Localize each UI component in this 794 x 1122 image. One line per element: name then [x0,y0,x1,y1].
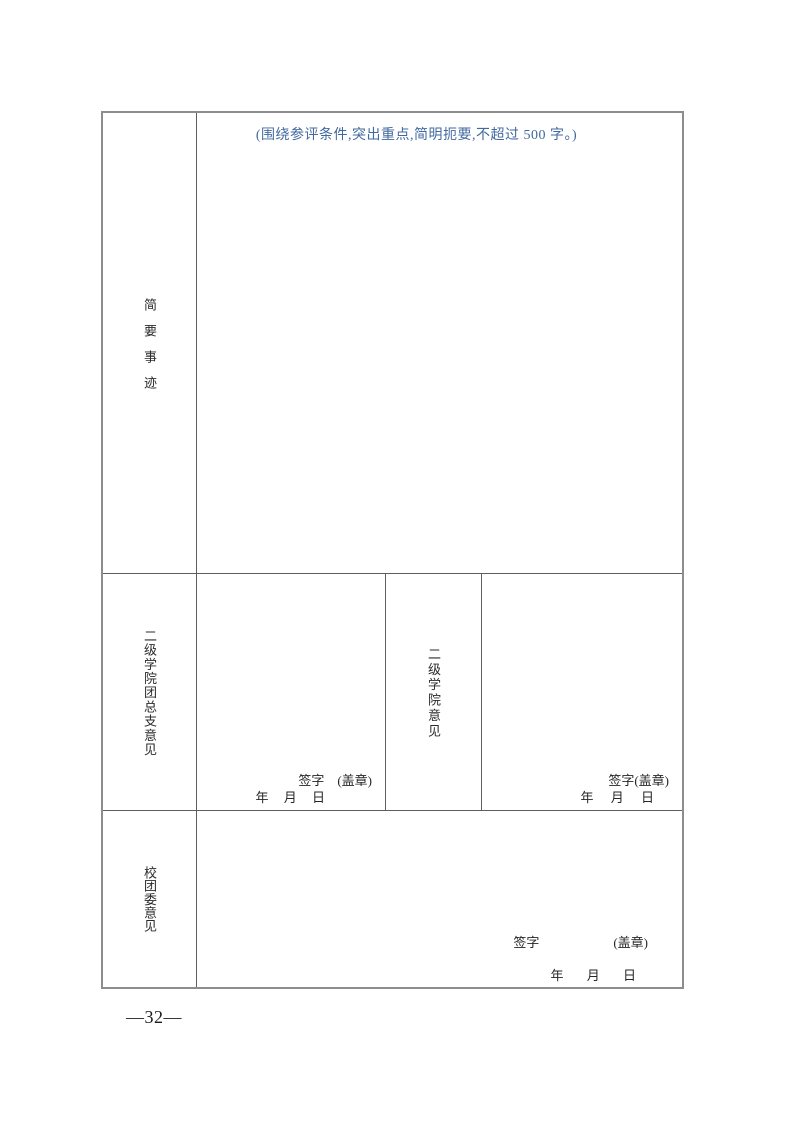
school-committee-date-line: 年 月 日 [550,967,636,984]
sign-label: 签字 [298,772,324,789]
sign-label: 签字 [513,934,539,951]
college-opinion-label-cell: 二级学院意见 [386,574,482,811]
school-committee-sign-line: 签字 (盖章) [513,934,648,951]
page-number: —32— [126,1007,182,1028]
school-committee-opinion-cell[interactable]: 签字 (盖章) 年 月 日 [197,811,682,987]
brief-deeds-hint: (围绕参评条件,突出重点,简明扼要,不超过 500 字。) [197,113,682,144]
seal-label: (盖章) [634,772,669,789]
league-branch-opinion-label: 二级学院团总支意见 [143,629,156,757]
evaluation-form-table: 简要事迹 (围绕参评条件,突出重点,简明扼要,不超过 500 字。) 二级学院团… [101,111,684,989]
league-branch-opinion-cell[interactable]: 签字 (盖章) 年 月 日 [197,574,386,811]
school-committee-opinion-label-cell: 校团委意见 [103,811,197,987]
brief-deeds-content-cell[interactable]: (围绕参评条件,突出重点,简明扼要,不超过 500 字。) [197,113,682,574]
league-branch-opinion-label-cell: 二级学院团总支意见 [103,574,197,811]
document-page: 简要事迹 (围绕参评条件,突出重点,简明扼要,不超过 500 字。) 二级学院团… [0,0,794,1122]
college-date-line: 年 月 日 [580,789,654,806]
school-committee-opinion-label: 校团委意见 [143,866,156,933]
college-opinion-label: 二级学院意见 [427,647,440,739]
league-branch-date-line: 年 月 日 [255,789,325,806]
sign-label: 签字 [608,772,634,789]
brief-deeds-label-cell: 简要事迹 [103,113,197,574]
college-sign-line: 签字 (盖章) [608,772,669,789]
seal-label: (盖章) [613,934,648,951]
brief-deeds-label: 简要事迹 [143,298,156,402]
league-branch-sign-line: 签字 (盖章) [298,772,372,789]
college-opinion-cell[interactable]: 签字 (盖章) 年 月 日 [482,574,682,811]
seal-label: (盖章) [337,772,372,789]
